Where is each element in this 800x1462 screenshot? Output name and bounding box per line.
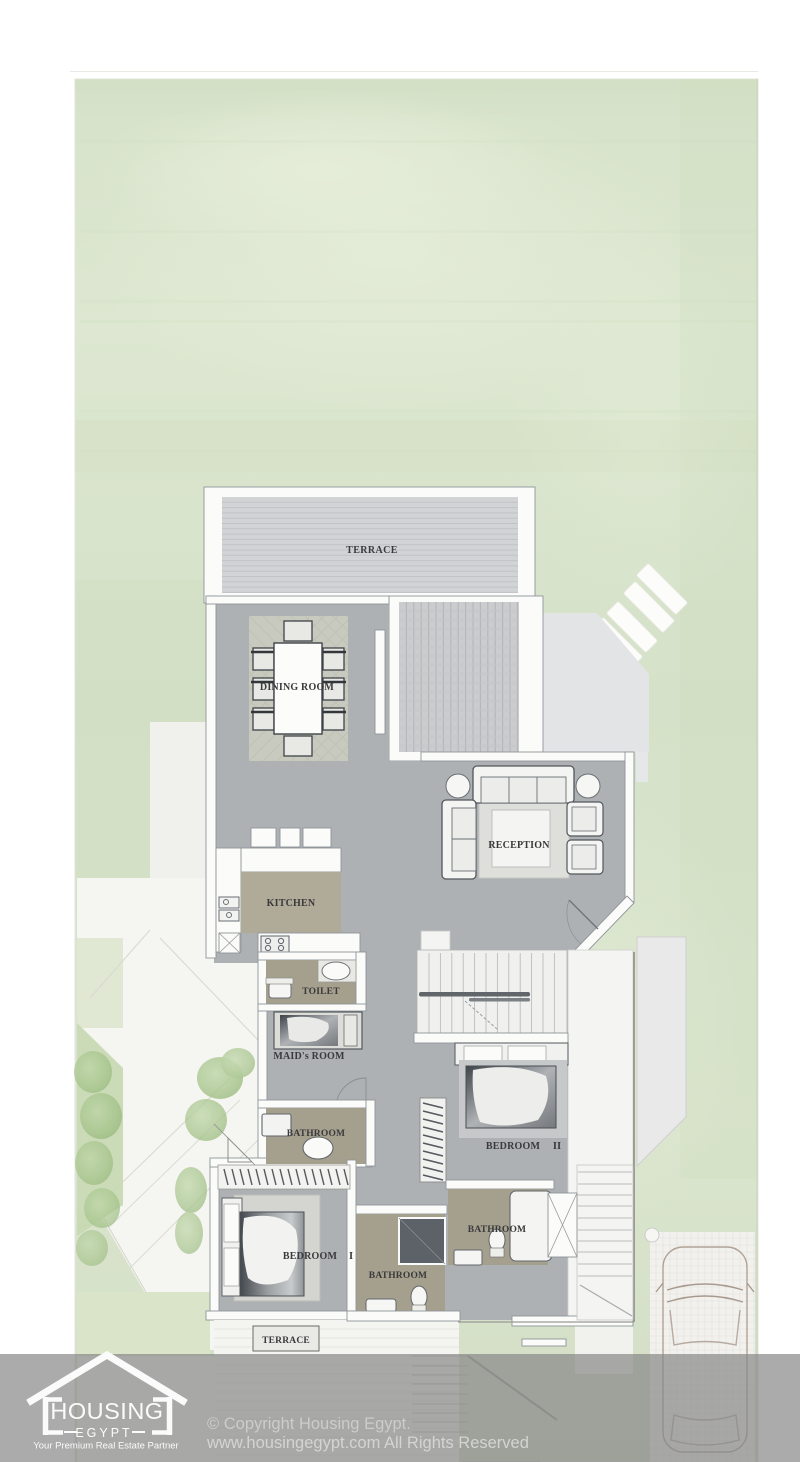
svg-text:DINING ROOM: DINING ROOM	[260, 682, 335, 693]
svg-text:www.housingegypt.com All Right: www.housingegypt.com All Rights Reserved	[206, 1434, 529, 1452]
svg-text:© Copyright Housing Egypt.: © Copyright Housing Egypt.	[207, 1415, 411, 1433]
svg-text:I: I	[349, 1251, 353, 1262]
svg-text:BATHROOM: BATHROOM	[287, 1129, 345, 1139]
svg-text:BATHROOM: BATHROOM	[369, 1271, 427, 1281]
svg-text:BATHROOM: BATHROOM	[468, 1225, 526, 1235]
svg-text:KITCHEN: KITCHEN	[267, 898, 316, 909]
svg-text:HOUSING: HOUSING	[50, 1398, 163, 1424]
svg-text:TERRACE: TERRACE	[346, 545, 398, 556]
svg-text:TERRACE: TERRACE	[262, 1336, 310, 1346]
svg-text:TOILET: TOILET	[302, 987, 340, 997]
svg-text:EGYPT: EGYPT	[75, 1426, 132, 1440]
svg-text:II: II	[553, 1141, 561, 1152]
svg-text:Your Premium Real Estate Partn: Your Premium Real Estate Partner	[33, 1441, 178, 1452]
svg-text:MAID's ROOM: MAID's ROOM	[273, 1051, 345, 1062]
svg-text:BEDROOM: BEDROOM	[486, 1141, 541, 1152]
svg-text:RECEPTION: RECEPTION	[488, 840, 550, 851]
svg-text:BEDROOM: BEDROOM	[283, 1251, 338, 1262]
